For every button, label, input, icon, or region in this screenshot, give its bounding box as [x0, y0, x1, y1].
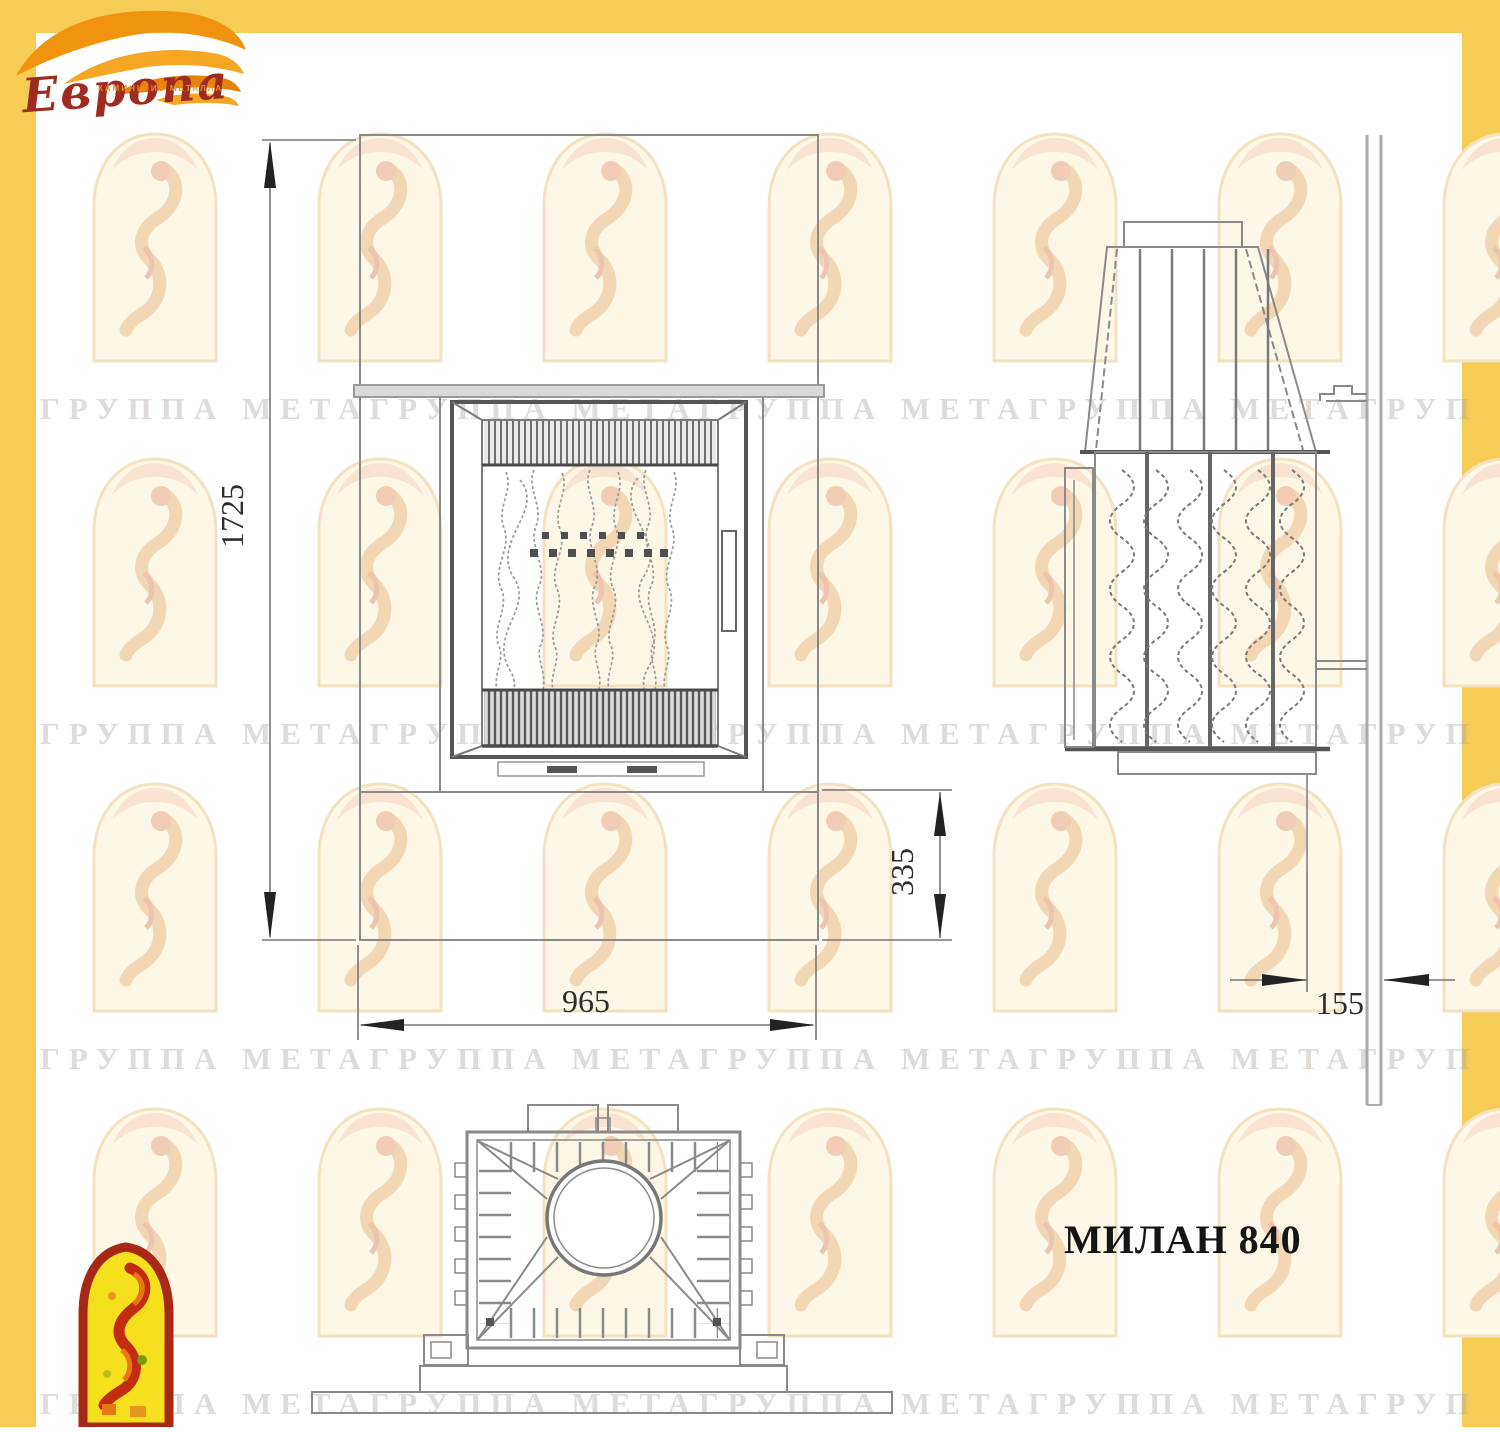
top-base-plate-wide — [312, 1392, 892, 1413]
dimension-overall-height: 1725 — [214, 140, 356, 940]
top-base-plate — [420, 1366, 787, 1392]
dimension-plinth-height: 335 — [822, 790, 952, 940]
front-view — [354, 135, 824, 940]
front-flames — [496, 470, 676, 726]
top-flue-tab-left — [528, 1105, 598, 1132]
side-firebox — [1095, 452, 1316, 747]
side-view — [1065, 135, 1381, 1105]
front-top-grille — [484, 421, 716, 465]
dimension-overall-width: 965 — [358, 945, 816, 1040]
firebird-arch-icon — [76, 1238, 176, 1427]
side-door-edge — [1065, 468, 1093, 747]
top-flue-circle — [547, 1161, 661, 1275]
door-handle — [722, 531, 736, 631]
side-plinth — [1118, 752, 1316, 774]
front-firebox — [452, 402, 746, 776]
dimension-depth: 155 — [1230, 872, 1455, 1021]
side-chimney-cap — [1124, 222, 1242, 247]
model-title: МИЛАН 840 — [1064, 1216, 1302, 1263]
front-bottom-grille — [484, 690, 716, 746]
dim-label-1725: 1725 — [214, 484, 250, 548]
dim-label-965: 965 — [562, 983, 610, 1019]
side-wall-bracket-upper — [1320, 386, 1367, 401]
front-hood — [360, 135, 818, 385]
fireplace-technical-drawing: 1725 335 965 155 — [0, 0, 1500, 1427]
side-hood — [1085, 247, 1316, 452]
top-view — [312, 1105, 892, 1413]
dim-label-155: 155 — [1316, 985, 1364, 1021]
front-body — [360, 397, 818, 940]
brand-caption: КАМИНЫ ИЗ МЕТАЛЛА — [98, 84, 223, 93]
front-vent-strip — [498, 762, 704, 776]
dim-label-335: 335 — [884, 848, 920, 896]
top-flue-tab-right — [608, 1105, 678, 1132]
brand-logo: Европа КАМИНЫ ИЗ МЕТАЛЛА — [6, 4, 256, 144]
front-mantel-shelf — [354, 385, 824, 397]
